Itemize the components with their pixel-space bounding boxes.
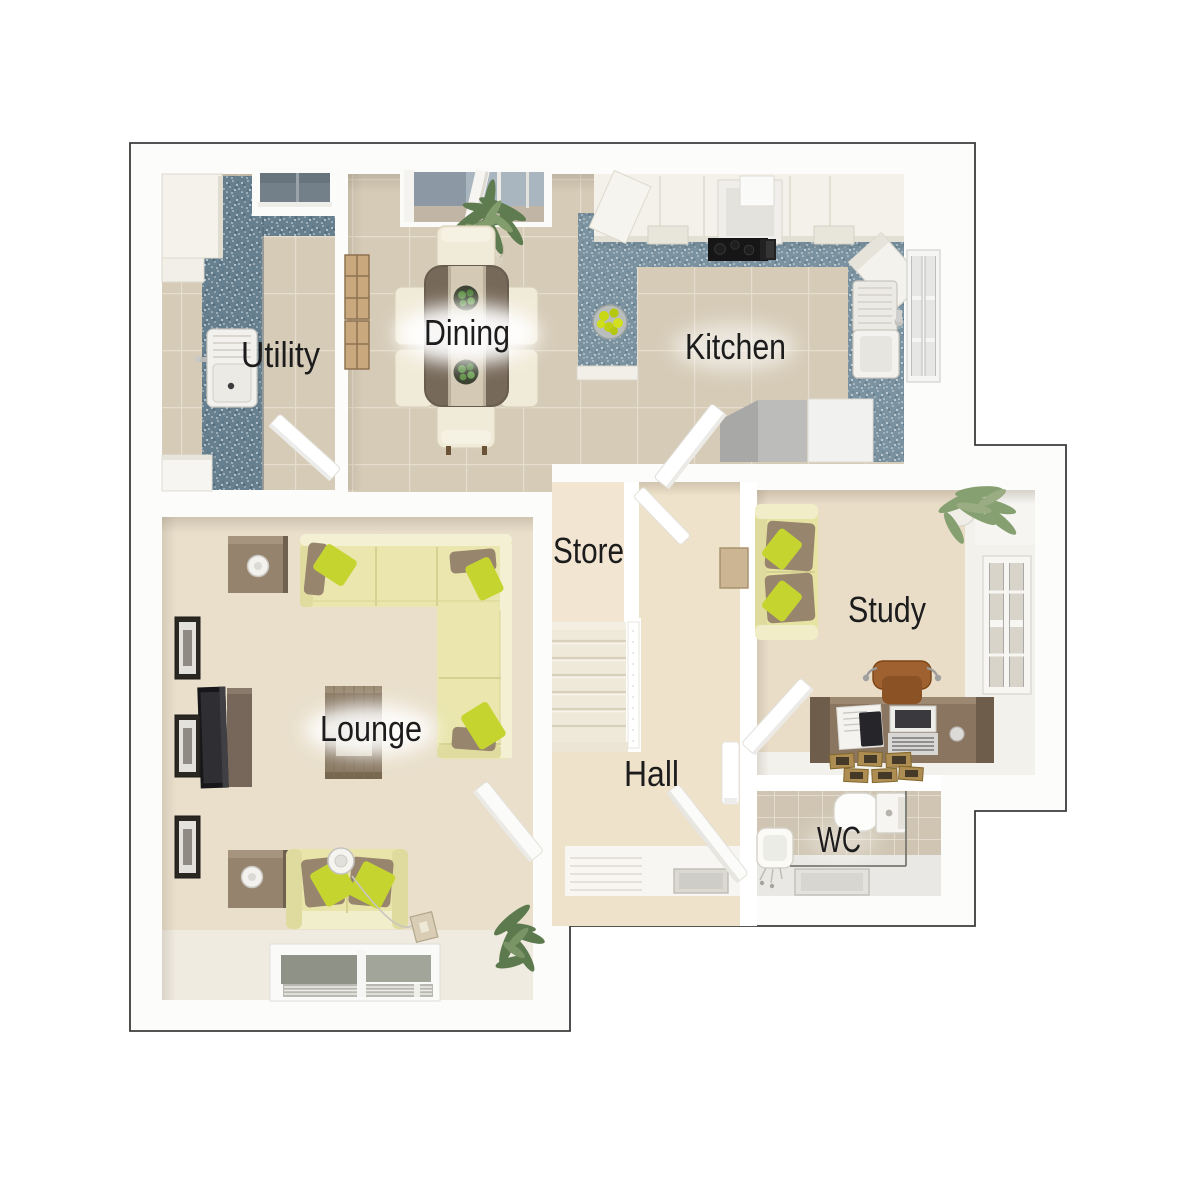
svg-text:Hall: Hall (624, 753, 679, 794)
svg-text:Dining: Dining (424, 312, 510, 353)
svg-text:Store: Store (553, 530, 624, 571)
svg-text:WC: WC (817, 819, 861, 860)
svg-text:Lounge: Lounge (320, 708, 422, 749)
svg-text:Kitchen: Kitchen (685, 326, 786, 367)
svg-text:Study: Study (848, 589, 926, 630)
svg-text:Utility: Utility (241, 334, 320, 375)
